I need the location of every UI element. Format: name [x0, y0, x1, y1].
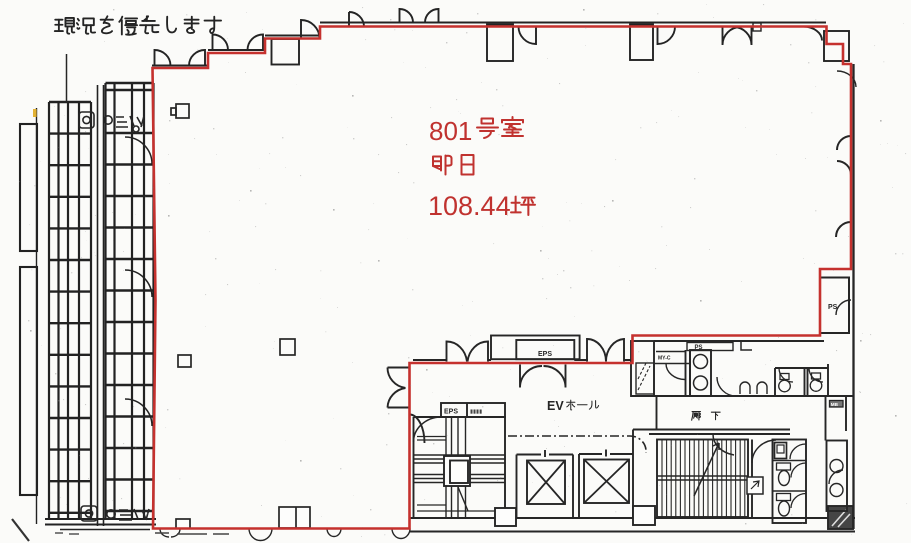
svg-text:108.44: 108.44 — [428, 191, 511, 221]
svg-text:MY-C: MY-C — [658, 356, 671, 362]
svg-text:EPS: EPS — [538, 351, 552, 358]
svg-text:MB: MB — [831, 402, 839, 407]
svg-text:▮▮▮▮: ▮▮▮▮ — [470, 409, 482, 415]
svg-text:EPS: EPS — [444, 409, 458, 416]
svg-text:EV: EV — [547, 399, 564, 413]
svg-text:801: 801 — [429, 116, 472, 146]
svg-text:PS: PS — [695, 345, 703, 351]
